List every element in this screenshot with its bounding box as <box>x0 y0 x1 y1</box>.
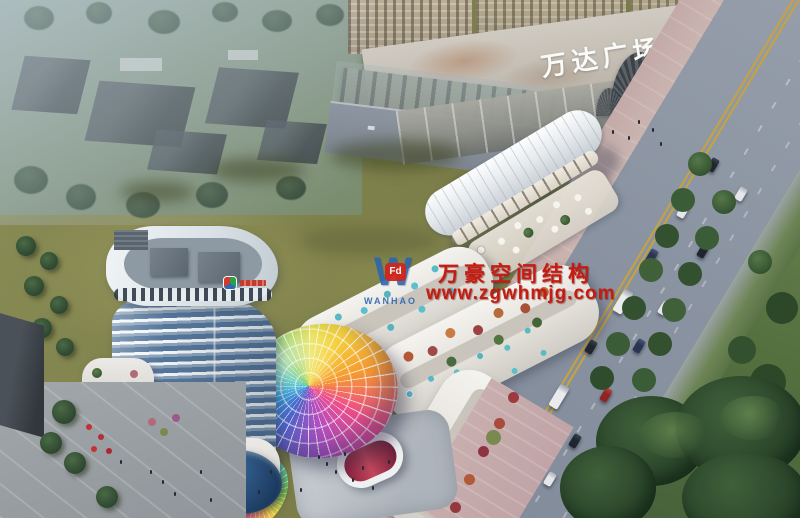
tree-shadow <box>210 158 305 182</box>
rooftop-panels <box>114 230 148 250</box>
red-umbrellas <box>86 424 92 430</box>
field-tree <box>50 296 68 314</box>
tree-shadow <box>120 182 195 202</box>
watermark-logo: W Fd WANHAO <box>368 254 432 312</box>
tree-grove-highlight <box>720 396 786 440</box>
teal-umbrellas <box>406 390 414 398</box>
street-tree-row-left <box>688 152 712 176</box>
flower-bush <box>172 414 180 422</box>
terrace-tree <box>92 368 102 378</box>
autumn-trees <box>402 350 415 363</box>
pedestrians-plaza <box>318 455 320 459</box>
plaza-tree <box>40 432 62 454</box>
field-tree <box>56 338 74 356</box>
watermark-logo-text: WANHAO <box>364 296 434 306</box>
flower-bush <box>160 428 168 436</box>
plaza-tree <box>52 400 76 424</box>
street-tree-row-right <box>712 190 736 214</box>
rooftop-equipment <box>150 248 188 276</box>
flower-bush <box>130 370 138 378</box>
pedestrians-mall <box>638 120 640 124</box>
pedestrians-west <box>150 470 152 474</box>
tower-roof-cap <box>106 226 278 306</box>
red-street-trees <box>508 392 519 403</box>
terrace-tree <box>558 213 572 227</box>
plaza-tree <box>96 486 118 508</box>
gray-building-corner <box>0 310 44 437</box>
field-tree <box>16 236 36 256</box>
watermark-logo-badge: Fd <box>385 263 406 281</box>
terrace-tree <box>522 226 536 240</box>
tree-shadow <box>330 140 460 170</box>
edge-trees <box>748 250 772 274</box>
city-road-cars <box>367 126 374 131</box>
plaza-tree <box>64 452 86 474</box>
field-tree <box>24 276 44 296</box>
watermark-website-url: www.zgwhmjg.com <box>426 283 616 305</box>
tower-logo <box>224 276 268 291</box>
tower-logo-text-bar <box>240 280 266 286</box>
tower-logo-emblem <box>224 277 236 289</box>
tree-shadow <box>300 226 440 256</box>
flower-bush <box>148 418 156 426</box>
tree-grove-highlight <box>640 412 710 458</box>
field-tree <box>40 252 58 270</box>
aerial-rendering-canvas: 万达广场 <box>0 0 800 518</box>
